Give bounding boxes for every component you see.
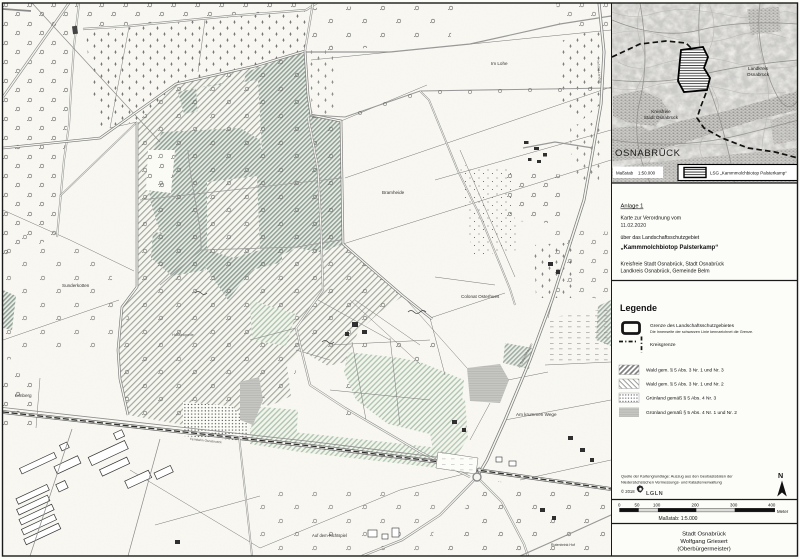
svg-text:© 2018: © 2018 bbox=[621, 489, 635, 494]
svg-text:Sunderkotten: Sunderkotten bbox=[62, 283, 90, 288]
svg-text:100: 100 bbox=[653, 503, 661, 508]
svg-text:„Kammmolchbiotop Palsterkamp“: „Kammmolchbiotop Palsterkamp“ bbox=[621, 245, 719, 251]
svg-text:Kreisfreie Stadt Osnabrück, St: Kreisfreie Stadt Osnabrück, Stadt Osnabr… bbox=[621, 262, 725, 268]
svg-text:Am krummen Wege: Am krummen Wege bbox=[516, 412, 557, 417]
svg-text:300: 300 bbox=[730, 503, 738, 508]
svg-text:Wald gem. § 5 Abs. 3 Nr. 1 und: Wald gem. § 5 Abs. 3 Nr. 1 und Nr. 2 bbox=[646, 382, 724, 388]
svg-text:Bramheide: Bramheide bbox=[382, 190, 405, 195]
svg-text:Grünland gemäß § 5 Abs. 4 Nr.: Grünland gemäß § 5 Abs. 4 Nr. 1 und Nr. … bbox=[646, 410, 737, 416]
svg-text:1:50.000: 1:50.000 bbox=[638, 171, 656, 176]
svg-text:OSNABRÜCK: OSNABRÜCK bbox=[615, 148, 681, 159]
svg-text:Maßstab: 1:5.000: Maßstab: 1:5.000 bbox=[659, 516, 698, 522]
svg-text:Grenze des Landschaftsschutzge: Grenze des Landschaftsschutzgebietes bbox=[650, 323, 735, 329]
svg-text:Stadt Osnabrück: Stadt Osnabrück bbox=[682, 532, 726, 538]
svg-text:Kreisgrenze: Kreisgrenze bbox=[650, 342, 676, 348]
svg-text:Die Innenseite der schwarzen L: Die Innenseite der schwarzen Linie kennz… bbox=[650, 330, 753, 334]
svg-text:Wald gem. § 5 Abs. 3 Nr. 1 und: Wald gem. § 5 Abs. 3 Nr. 1 und Nr. 3 bbox=[646, 368, 724, 374]
svg-text:N: N bbox=[778, 471, 783, 480]
svg-text:(Oberbürgermeister): (Oberbürgermeister) bbox=[677, 547, 730, 553]
svg-text:Landkreis Osnabrück, Gemeinde: Landkreis Osnabrück, Gemeinde Belm bbox=[621, 269, 710, 275]
svg-text:Quelle der Kartengrundlage: Au: Quelle der Kartengrundlage: Auszug aus d… bbox=[621, 474, 733, 479]
svg-text:LSG „Kammmolchbiotop Palsterka: LSG „Kammmolchbiotop Palsterkamp“ bbox=[710, 171, 787, 176]
svg-text:Legende: Legende bbox=[620, 303, 657, 313]
svg-text:11.02.2020: 11.02.2020 bbox=[621, 223, 647, 229]
svg-text:Maßstab: Maßstab bbox=[616, 171, 634, 176]
svg-text:Grünland gemäß § 5 Abs. 4 Nr.: Grünland gemäß § 5 Abs. 4 Nr. 3 bbox=[646, 396, 716, 402]
svg-text:Anlage 1: Anlage 1 bbox=[621, 204, 644, 210]
svg-text:Meter: Meter bbox=[777, 509, 789, 514]
svg-text:Osnabrück: Osnabrück bbox=[747, 72, 770, 77]
svg-text:Landkreis: Landkreis bbox=[748, 66, 769, 71]
svg-text:über das Landschaftsschutzgebi: über das Landschaftsschutzgebiet bbox=[621, 235, 700, 241]
svg-text:Hasselquelle: Hasselquelle bbox=[172, 333, 194, 337]
svg-text:200: 200 bbox=[692, 503, 700, 508]
svg-text:Limberg: Limberg bbox=[15, 393, 32, 398]
svg-text:Im Lohe: Im Lohe bbox=[491, 61, 508, 66]
svg-text:LGLN: LGLN bbox=[646, 491, 663, 497]
svg-text:Colonat Osterhues: Colonat Osterhues bbox=[461, 294, 500, 299]
svg-text:Rutenbrink Hof: Rutenbrink Hof bbox=[551, 543, 575, 547]
svg-text:Karte zur Verordnung vom: Karte zur Verordnung vom bbox=[621, 216, 682, 222]
svg-text:Stadt Osnabrück: Stadt Osnabrück bbox=[644, 115, 679, 120]
svg-text:Niedersächsischen Vermessungs-: Niedersächsischen Vermessungs- und Katas… bbox=[621, 480, 722, 485]
svg-text:Kreisfreie: Kreisfreie bbox=[651, 109, 671, 114]
svg-text:50: 50 bbox=[635, 503, 640, 508]
svg-text:Auf dem Richtspiel: Auf dem Richtspiel bbox=[312, 533, 347, 538]
svg-text:400: 400 bbox=[768, 503, 776, 508]
svg-text:Wolfgang Griesert: Wolfgang Griesert bbox=[680, 539, 728, 545]
